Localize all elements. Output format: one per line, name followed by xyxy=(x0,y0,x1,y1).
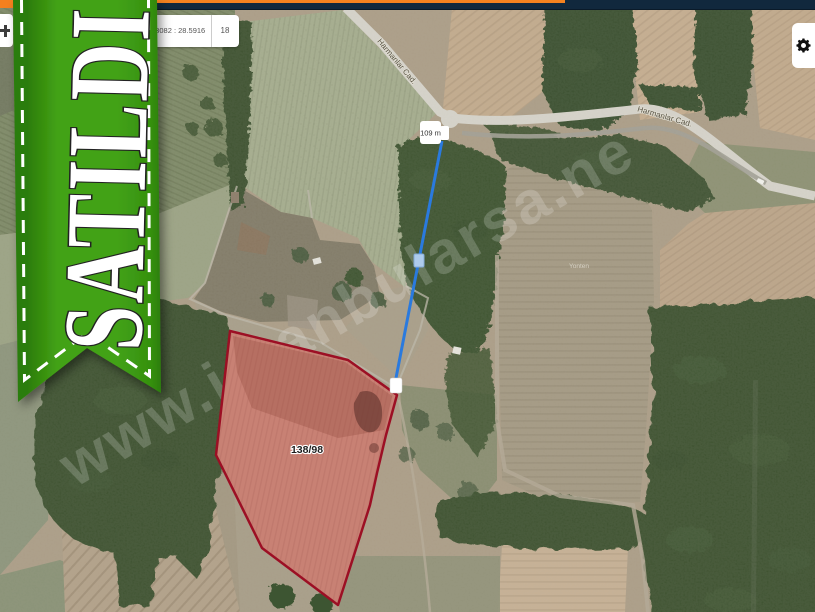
svg-text:138/98: 138/98 xyxy=(291,444,323,456)
svg-text:SATILDI: SATILDI xyxy=(40,5,174,352)
svg-text:109 m: 109 m xyxy=(420,129,441,138)
